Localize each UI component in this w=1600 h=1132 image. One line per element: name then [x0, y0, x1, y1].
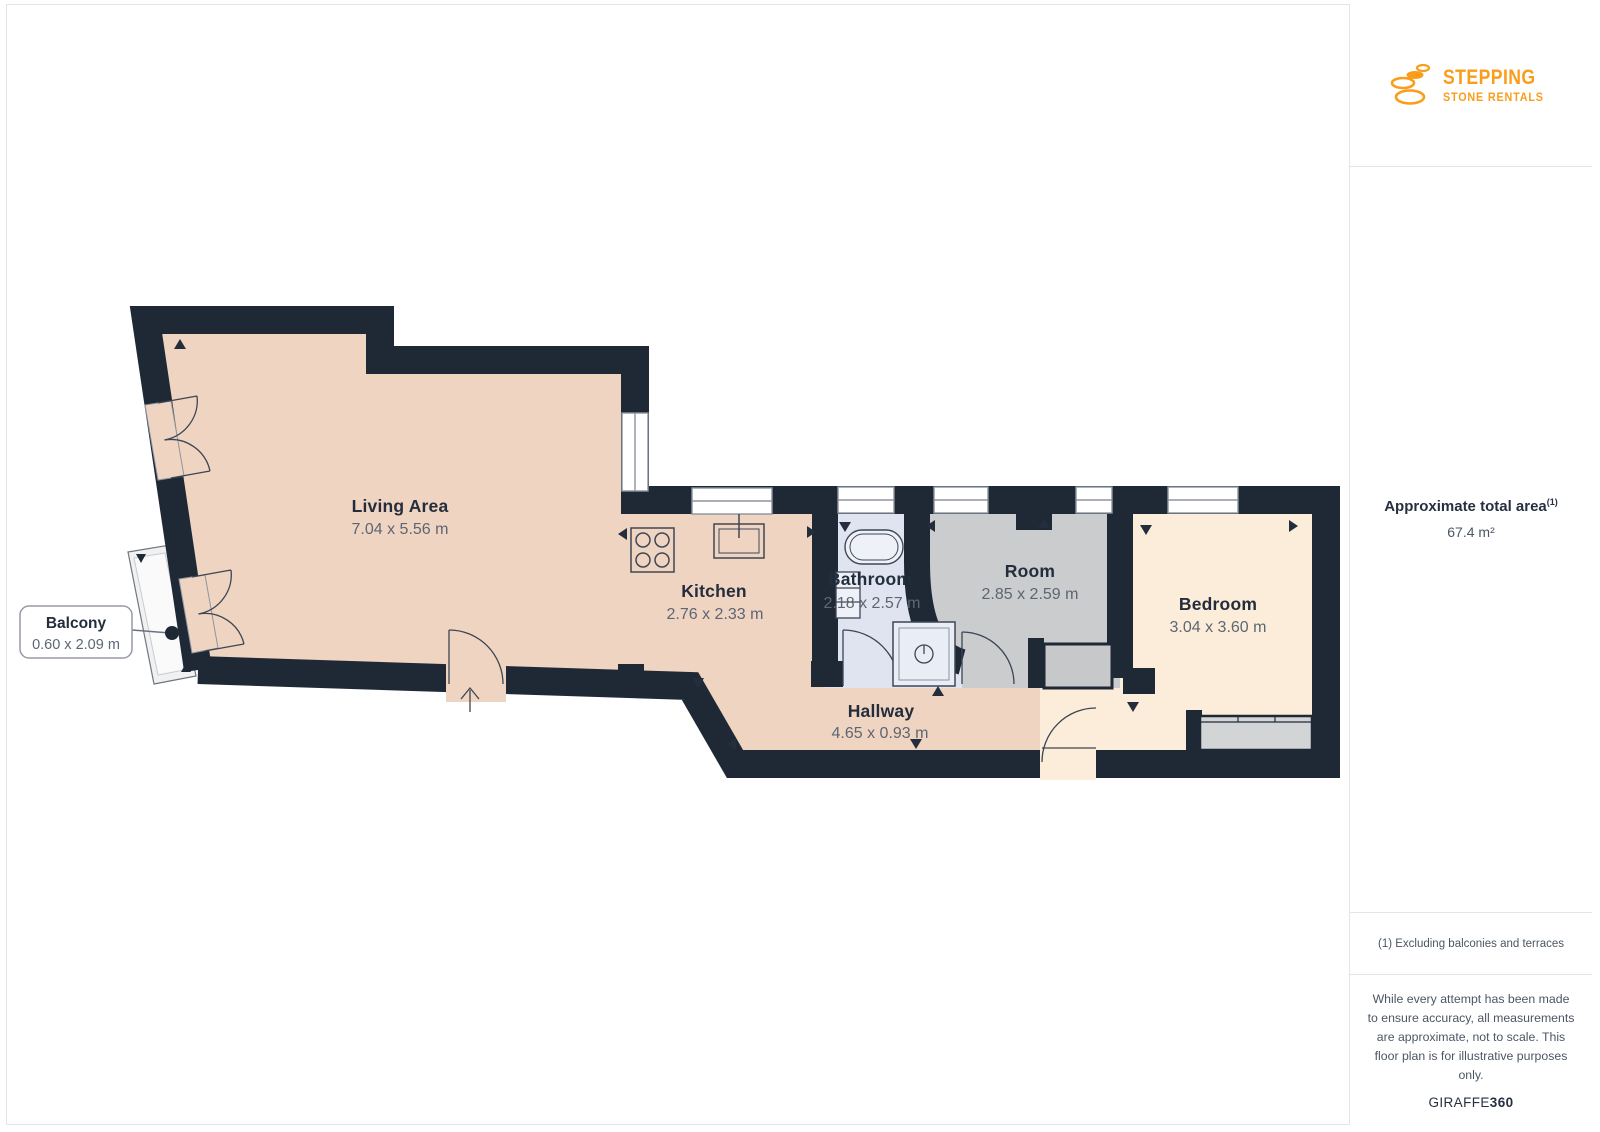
floorplan-page: Living Area 7.04 x 5.56 m Kitchen 2.76 x…	[0, 0, 1600, 1132]
room-label-bedroom: Bedroom	[1179, 594, 1257, 614]
company-logo: STEPPING STONE RENTALS	[1387, 60, 1555, 110]
total-area-value: 67.4 m²	[1350, 524, 1592, 540]
disclaimer-section: While every attempt has been made to ens…	[1350, 975, 1592, 1123]
logo-text: STEPPING STONE RENTALS	[1443, 67, 1555, 103]
room-dims-bedroom: 3.04 x 3.60 m	[1170, 619, 1267, 636]
window-living	[622, 413, 648, 491]
giraffe360-regular: GIRAFFE	[1428, 1095, 1489, 1110]
room-dims-bathroom: 2.18 x 2.57 m	[824, 595, 921, 612]
window-bedroom	[1168, 487, 1238, 513]
room-dims-balcony: 0.60 x 2.09 m	[32, 637, 120, 653]
cupboard-icon	[1044, 644, 1112, 688]
window-kitchen	[692, 488, 772, 514]
window-room-right	[1076, 487, 1112, 513]
footnote-text: (1) Excluding balconies and terraces	[1378, 938, 1564, 950]
callout-anchor-dot	[165, 626, 179, 640]
wall-return-bedroom	[1123, 668, 1155, 694]
wall-stub-room	[1028, 638, 1044, 688]
radiator-icon	[1200, 716, 1312, 750]
room-dims-room: 2.85 x 2.59 m	[982, 586, 1079, 603]
room-label-living-area: Living Area	[352, 496, 449, 516]
logo-section: STEPPING STONE RENTALS	[1350, 4, 1592, 167]
giraffe360-watermark: GIRAFFE360	[1350, 1095, 1592, 1110]
room-label-balcony: Balcony	[46, 615, 107, 632]
info-sidebar: STEPPING STONE RENTALS Approximate total…	[1349, 4, 1592, 1125]
room-dims-living-area: 7.04 x 5.56 m	[352, 521, 449, 538]
room-dims-kitchen: 2.76 x 2.33 m	[667, 606, 764, 623]
logo-line1: STEPPING	[1443, 67, 1537, 88]
total-area-label: Approximate total area(1)	[1350, 497, 1592, 515]
footnote-section: (1) Excluding balconies and terraces	[1350, 913, 1592, 975]
total-area-section: Approximate total area(1) 67.4 m²	[1350, 167, 1592, 913]
floorplan-drawing: Living Area 7.04 x 5.56 m Kitchen 2.76 x…	[0, 0, 1349, 1132]
shower-icon	[893, 622, 955, 686]
room-label-room: Room	[1005, 561, 1055, 581]
room-dims-hallway: 4.65 x 0.93 m	[832, 725, 929, 742]
window-room-left	[934, 487, 988, 513]
total-area-label-text: Approximate total area	[1384, 498, 1547, 515]
giraffe360-bold: 360	[1490, 1095, 1514, 1110]
wall-stub-kitchen	[618, 664, 644, 684]
total-area-footnote-marker: (1)	[1547, 497, 1558, 507]
window-bathroom	[838, 487, 894, 513]
bathtub-icon	[845, 530, 903, 564]
room-label-hallway: Hallway	[848, 701, 915, 721]
stepping-stones-icon	[1387, 60, 1437, 110]
disclaimer-text: While every attempt has been made to ens…	[1367, 990, 1575, 1085]
room-label-kitchen: Kitchen	[681, 581, 747, 601]
room-label-bathroom: Bathroom	[828, 569, 912, 589]
logo-line2: STONE RENTALS	[1443, 91, 1544, 103]
